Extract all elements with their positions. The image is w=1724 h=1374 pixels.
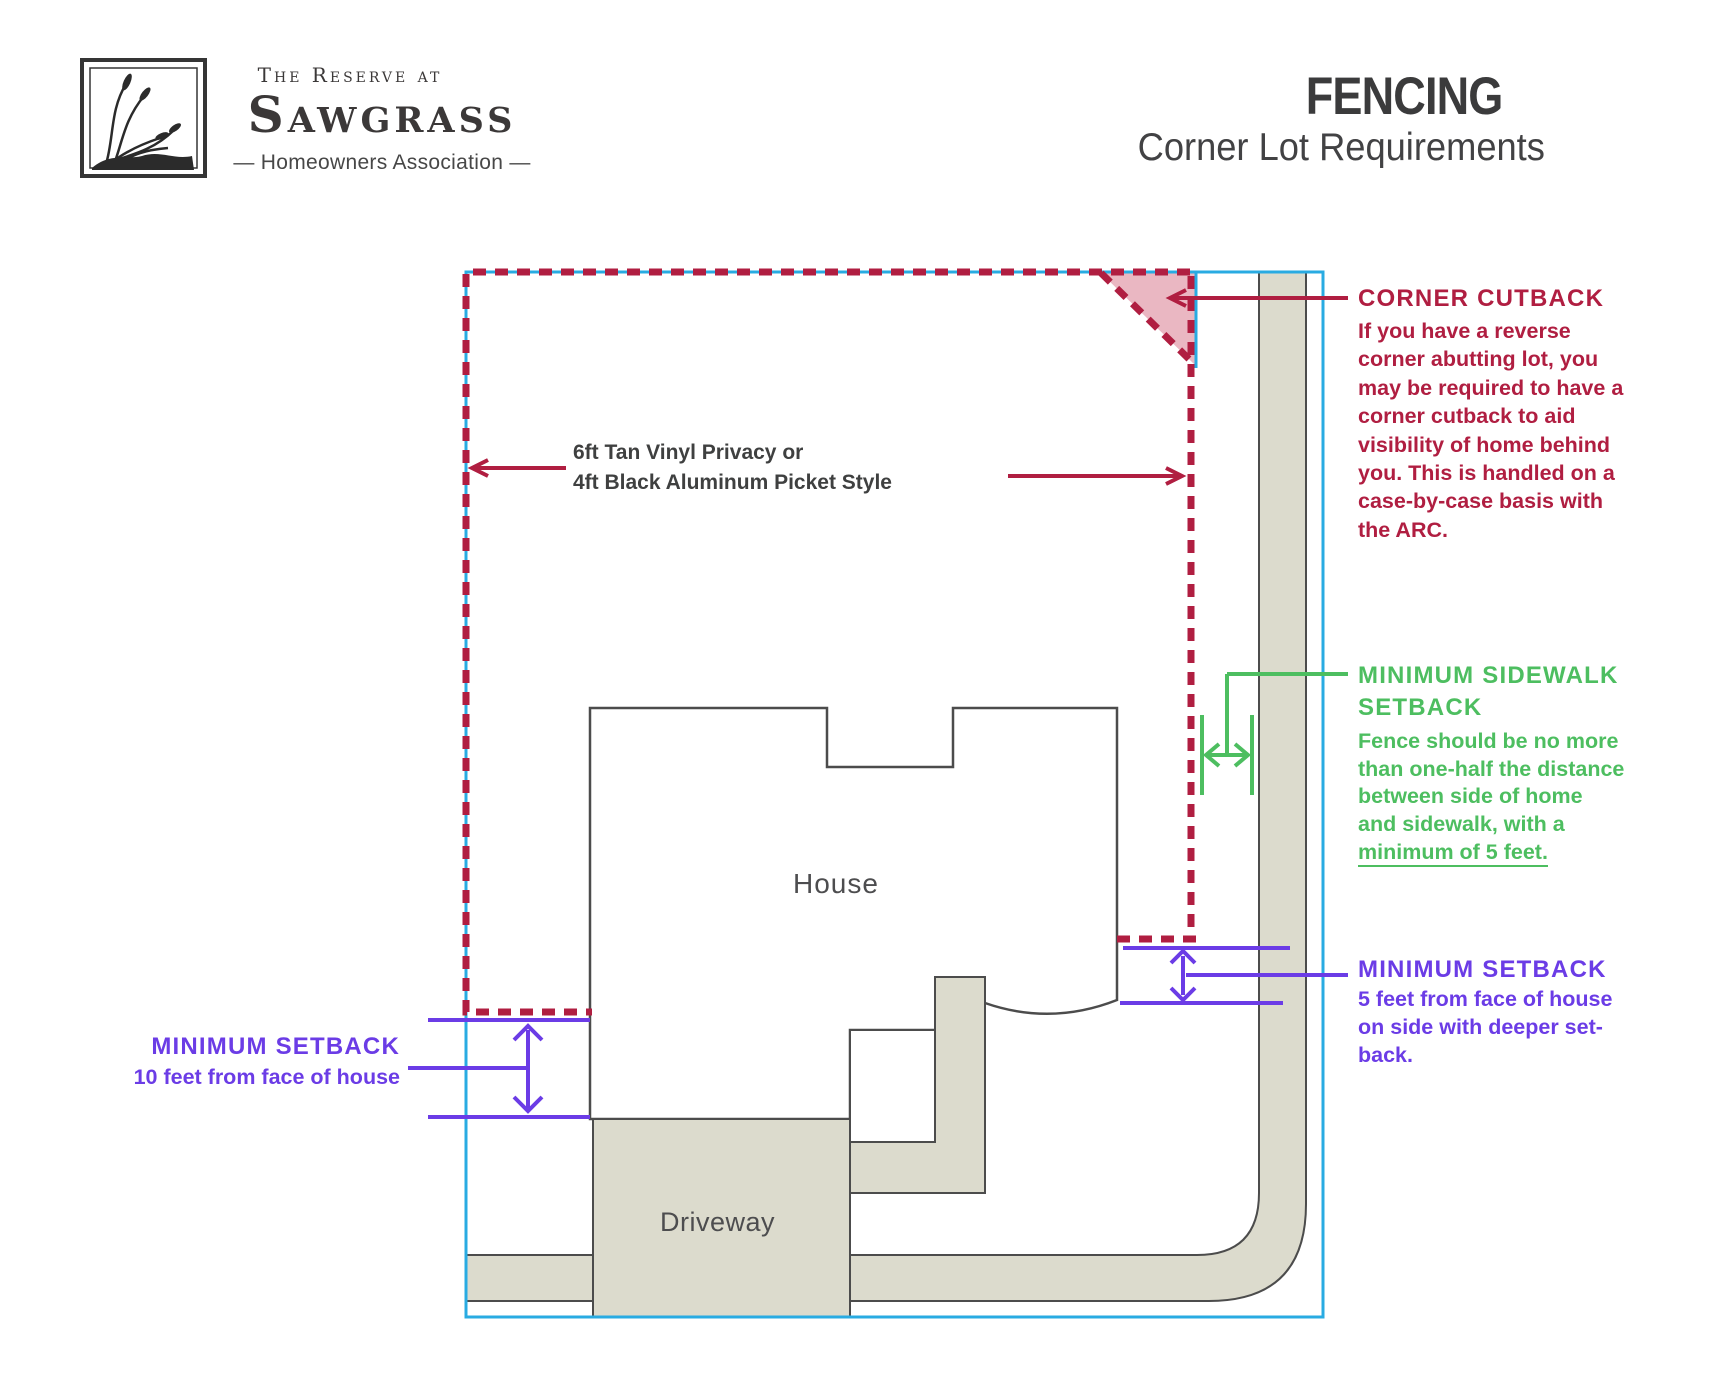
page-subtitle: Corner Lot Requirements bbox=[1138, 128, 1545, 167]
sidewalk-setback-heading: MINIMUM SIDEWALK SETBACK bbox=[1358, 660, 1624, 724]
sidewalk-setback-line: Fence should be no more bbox=[1358, 728, 1624, 756]
corner-cutback-line: If you have a reverse bbox=[1358, 317, 1623, 345]
sawgrass-grass-icon bbox=[80, 58, 207, 178]
page-title: FENCING bbox=[1305, 70, 1502, 123]
setback-left-heading: MINIMUM SETBACK bbox=[134, 1032, 400, 1062]
corner-cutback-line: corner abutting lot, you bbox=[1358, 345, 1623, 373]
corner-cutback-bold-word: may bbox=[1358, 376, 1401, 400]
setback-right-heading: MINIMUM SETBACK bbox=[1358, 956, 1612, 984]
setback-right-body: 5 feet from face of house on side with d… bbox=[1358, 985, 1612, 1069]
corner-cutback-line3-rest: be required to have a bbox=[1401, 376, 1623, 400]
sidewalk-setback-line: minimum of 5 feet. bbox=[1358, 839, 1624, 867]
driveway-label: Driveway bbox=[660, 1207, 775, 1238]
logo-tagline: — Homeowners Association — bbox=[228, 151, 536, 175]
corner-cutback-heading: CORNER CUTBACK bbox=[1358, 286, 1623, 312]
setback-left-line: 10 feet from face of house bbox=[134, 1062, 400, 1092]
fence-type-line1: 6ft Tan Vinyl Privacy or bbox=[573, 438, 892, 468]
fence-type-line2: 4ft Black Aluminum Picket Style bbox=[573, 468, 892, 498]
fence-type-label: 6ft Tan Vinyl Privacy or 4ft Black Alumi… bbox=[573, 438, 892, 498]
corner-cutback-body: If you have a reverse corner abutting lo… bbox=[1358, 317, 1623, 544]
corner-cutback-line: visibility of home behind bbox=[1358, 431, 1623, 459]
sidewalk-setback-line: than one-half the distance bbox=[1358, 756, 1624, 784]
porch-step-shape bbox=[850, 1030, 935, 1142]
house-label: House bbox=[793, 868, 879, 900]
setback-right-line: on side with deeper set- bbox=[1358, 1013, 1612, 1041]
logo-name-top: The Reserve at bbox=[230, 63, 470, 87]
sidewalk-setback-line: and sidewalk, with a bbox=[1358, 811, 1624, 839]
setback-left-annotation: MINIMUM SETBACK 10 feet from face of hou… bbox=[134, 1032, 400, 1092]
sidewalk-setback-heading-line1: MINIMUM SIDEWALK bbox=[1358, 660, 1624, 692]
sidewalk-setback-line: between side of home bbox=[1358, 783, 1624, 811]
corner-cutback-line: case-by-case basis with bbox=[1358, 487, 1623, 515]
sidewalk-setback-annotation: MINIMUM SIDEWALK SETBACK Fence should be… bbox=[1358, 660, 1624, 867]
logo-name-main: Sawgrass bbox=[226, 90, 538, 140]
setback-right-marker bbox=[1120, 948, 1348, 1003]
fence-arrow-left bbox=[472, 460, 566, 476]
fencing-requirements-page: The Reserve at Sawgrass — Homeowners Ass… bbox=[0, 0, 1724, 1374]
sidewalk-setback-body: Fence should be no more than one-half th… bbox=[1358, 728, 1624, 867]
corner-cutback-line: corner cutback to aid bbox=[1358, 402, 1623, 430]
corner-cutback-annotation: CORNER CUTBACK If you have a reverse cor… bbox=[1358, 286, 1623, 544]
corner-cutback-line: you. This is handled on a bbox=[1358, 459, 1623, 487]
corner-cutback-line: the ARC. bbox=[1358, 516, 1623, 544]
setback-right-line: back. bbox=[1358, 1041, 1612, 1069]
fence-arrow-right bbox=[1008, 468, 1182, 484]
sidewalk-setback-heading-line2: SETBACK bbox=[1358, 692, 1624, 724]
setback-right-line: 5 feet from face of house bbox=[1358, 985, 1612, 1013]
sidewalk-setback-emphasis: minimum of 5 feet. bbox=[1358, 840, 1548, 867]
setback-right-annotation: MINIMUM SETBACK 5 feet from face of hous… bbox=[1358, 956, 1612, 1069]
corner-cutback-line: may be required to have a bbox=[1358, 374, 1623, 402]
setback-left-marker bbox=[408, 1020, 590, 1117]
